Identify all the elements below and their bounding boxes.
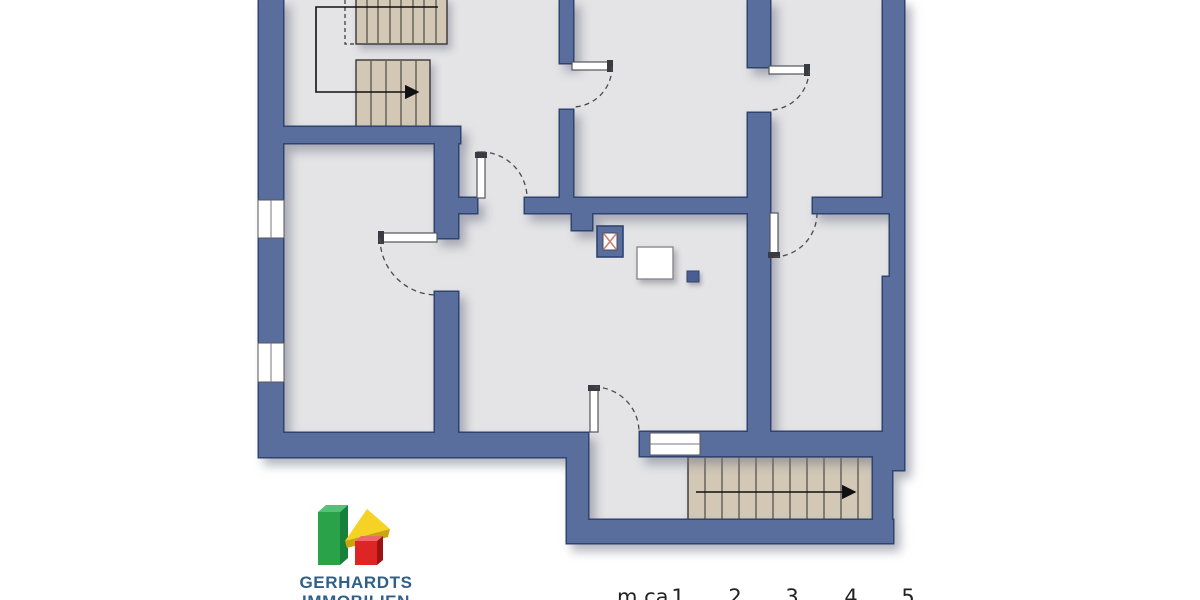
scale-mark-1: 1 [671, 585, 684, 600]
logo-text-line1: GERHARDTS [299, 573, 412, 592]
staircase-lower-right [688, 457, 875, 520]
floor-plan: GERHARDTS IMMOBILIEN m ca. 1 2 3 4 5 [0, 0, 1200, 600]
scale-bar: m ca. 1 2 3 4 5 [617, 585, 915, 600]
window [258, 200, 284, 238]
scale-mark-5: 5 [901, 585, 914, 600]
logo-building-icon [318, 505, 390, 565]
scale-mark-2: 2 [728, 585, 741, 600]
small-duct-marker [687, 271, 699, 282]
scale-unit-label: m ca. [617, 585, 675, 600]
shaft [637, 247, 673, 279]
chimney [597, 226, 623, 257]
logo-text-line2: IMMOBILIEN [302, 592, 410, 600]
window [258, 343, 284, 382]
scale-mark-3: 3 [785, 585, 798, 600]
logo-gerhardts-immobilien: GERHARDTS IMMOBILIEN [299, 505, 412, 600]
scale-mark-4: 4 [844, 585, 857, 600]
window [650, 433, 700, 455]
page: GERHARDTS IMMOBILIEN m ca. 1 2 3 4 5 [0, 0, 1200, 600]
